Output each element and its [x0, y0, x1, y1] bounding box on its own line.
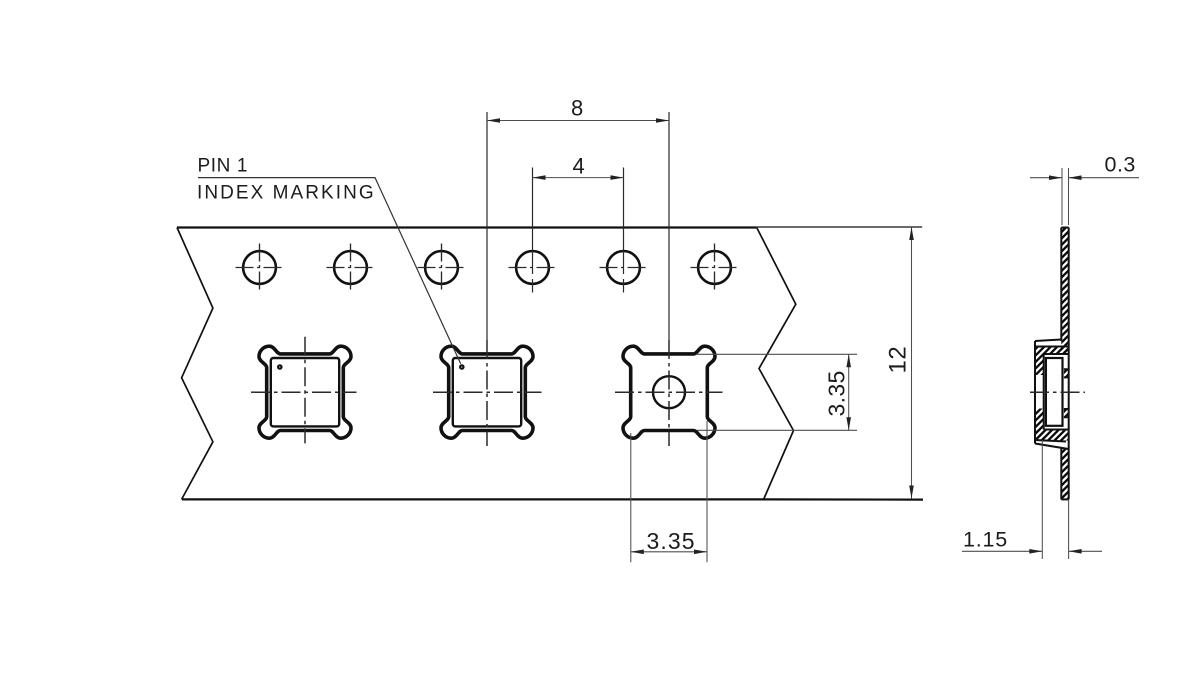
svg-text:INDEX MARKING: INDEX MARKING: [197, 183, 376, 204]
svg-text:0.3: 0.3: [1105, 152, 1136, 176]
svg-text:8: 8: [571, 95, 583, 120]
svg-text:1.15: 1.15: [963, 528, 1008, 552]
svg-text:3.35: 3.35: [647, 528, 696, 554]
svg-text:PIN 1: PIN 1: [198, 156, 249, 177]
svg-text:4: 4: [573, 154, 585, 179]
svg-text:12: 12: [885, 346, 912, 374]
svg-text:3.35: 3.35: [824, 370, 850, 416]
